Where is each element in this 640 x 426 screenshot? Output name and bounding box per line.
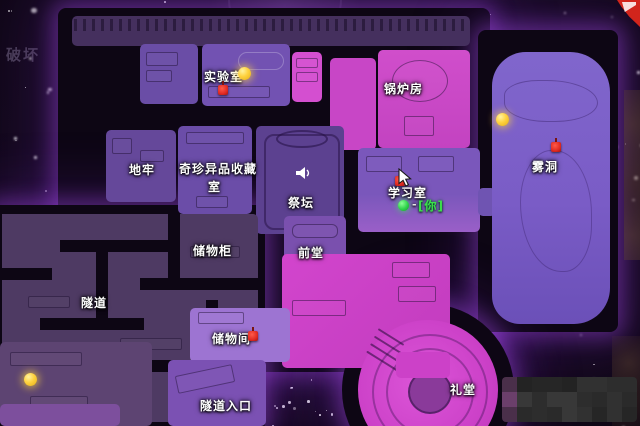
room-label-fog-cave: 雾洞 [532,158,558,175]
red-sabotage-marker-storage[interactable] [248,331,258,341]
game-map-screen: 破坏 [0,0,640,426]
room-bottom-left-corner [0,404,120,426]
speaker-icon [295,166,312,180]
yellow-dot-marker-fog-cave [496,113,509,126]
altar-oval [276,130,328,148]
auditorium-bridge [396,352,450,378]
room-label-altar: 祭坛 [288,194,314,211]
room-label-front-hall: 前堂 [298,244,324,261]
faint-sabotage-text: 破坏 [6,44,40,65]
player-name-tag: [你] [418,197,444,214]
red-sabotage-marker-lab[interactable] [218,85,228,95]
corridor-fence [74,19,468,31]
wood-carving-decor [624,90,640,260]
room-label-collection-line2: 室 [208,178,221,195]
yellow-dot-marker-lab [238,67,251,80]
room-label-storage: 储物间 [212,330,251,347]
room-label-auditorium: 礼堂 [450,381,476,398]
censored-watermark-mosaic [502,377,637,422]
player-dash: - [412,198,418,211]
room-label-tunnel-entrance: 隧道入口 [200,397,252,414]
player-green-dot [398,200,409,211]
red-sabotage-marker-fog-cave[interactable] [551,142,561,152]
yellow-dot-marker-tunnel [24,373,37,386]
fog-cave-lines [504,80,598,122]
room-label-tunnel: 隧道 [81,294,107,311]
room-label-lockers: 储物柜 [193,242,232,259]
room-label-boiler: 锅炉房 [384,80,423,97]
room-label-collection-line1: 奇珍异品收藏 [179,160,257,177]
cursor-pointer [397,168,413,187]
room-label-dungeon: 地牢 [129,161,155,178]
